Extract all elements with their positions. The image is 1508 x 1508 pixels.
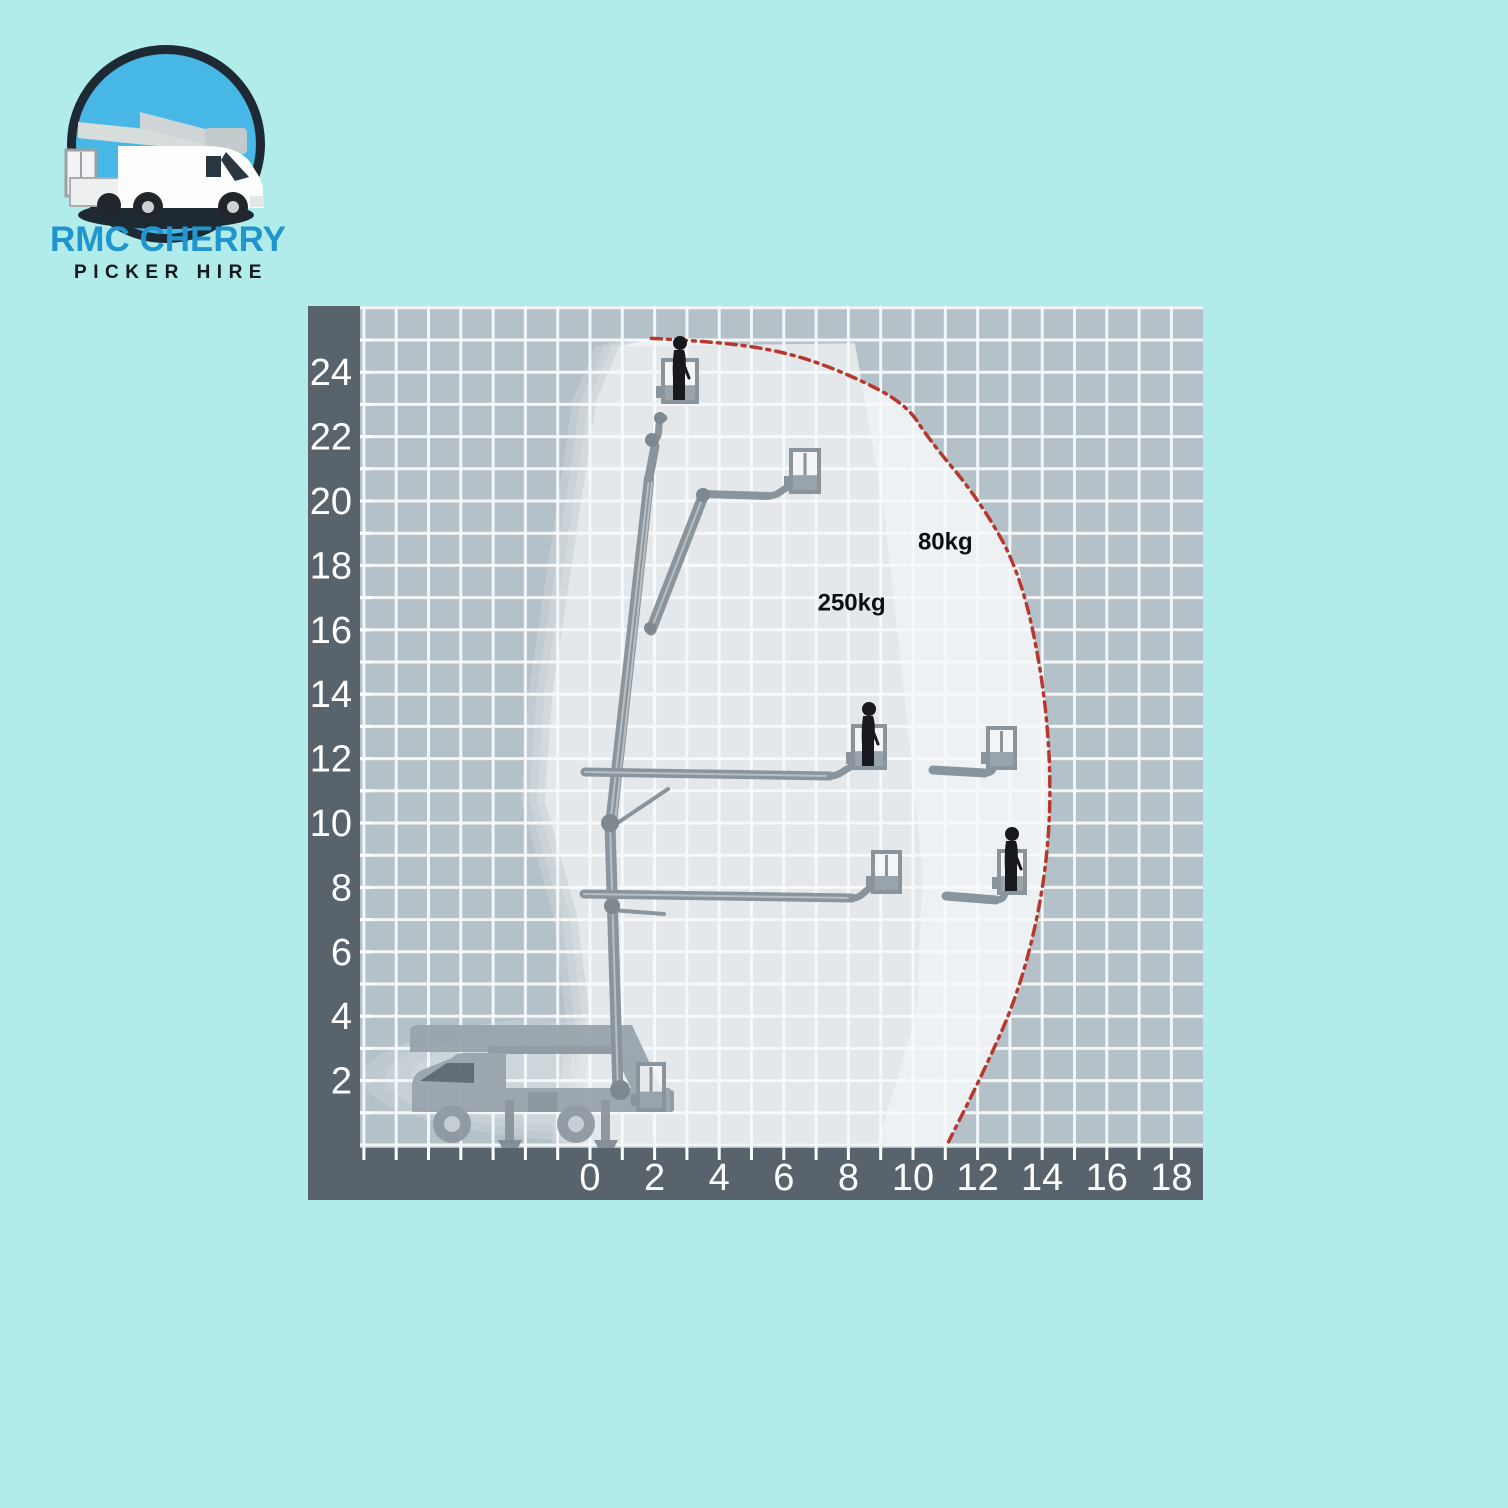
- y-axis-tick: [360, 950, 372, 953]
- operator-head: [862, 702, 876, 716]
- logo-wheel-2-hub: [142, 201, 154, 213]
- operator-body: [1005, 841, 1018, 891]
- y-axis-tick: [360, 435, 372, 438]
- operator-head: [1005, 827, 1019, 841]
- brand-logo: [66, 45, 265, 243]
- y-axis-tick: [360, 693, 372, 696]
- stowed-boom-lower: [488, 1046, 614, 1054]
- y-axis-tick: [360, 886, 372, 889]
- x-axis-tick: [556, 1148, 559, 1160]
- basket: [784, 450, 819, 492]
- x-axis-tick: [685, 1148, 688, 1160]
- y-axis-tick: [360, 1047, 372, 1050]
- boom-joint: [604, 898, 620, 914]
- logo-bumper: [250, 196, 264, 207]
- y-tick-label: 16: [310, 610, 352, 652]
- boom-joint: [654, 412, 666, 424]
- boom-segment: [933, 770, 985, 773]
- x-tick-label: 18: [1150, 1157, 1192, 1199]
- page-background: 2468101214161820222402468101214161880kg2…: [0, 0, 1508, 1508]
- y-axis-tick: [360, 371, 372, 374]
- logo-truck: [66, 112, 264, 222]
- chassis-box: [528, 1092, 558, 1112]
- y-tick-label: 10: [310, 803, 352, 845]
- y-axis-tick: [360, 822, 372, 825]
- y-axis-tick: [360, 661, 372, 664]
- y-tick-label: 2: [331, 1061, 352, 1103]
- y-axis-tick: [360, 564, 372, 567]
- boom-joint: [610, 1080, 630, 1100]
- brand-name: RMC CHERRY: [27, 222, 309, 257]
- reach-diagram: 2468101214161820222402468101214161880kg2…: [308, 306, 1203, 1200]
- x-axis-tick: [492, 1148, 495, 1160]
- basket-panel: [640, 1092, 662, 1108]
- y-axis-tick: [360, 918, 372, 921]
- y-axis-tick: [360, 1111, 372, 1114]
- x-axis-tick: [750, 1148, 753, 1160]
- operator-body: [862, 716, 875, 766]
- x-axis-tick: [944, 1148, 947, 1160]
- x-tick-label: 8: [838, 1157, 859, 1199]
- x-tick-label: 16: [1086, 1157, 1128, 1199]
- x-axis-tick: [459, 1148, 462, 1160]
- y-tick-label: 12: [310, 739, 352, 781]
- x-tick-label: 0: [579, 1157, 600, 1199]
- boom-joint: [645, 433, 659, 447]
- logo-van-body: [118, 146, 210, 208]
- basket-mount: [656, 386, 664, 398]
- brand-text-block: RMC CHERRY PICKER HIRE: [27, 222, 309, 282]
- y-tick-label: 8: [331, 867, 352, 909]
- x-tick-label: 12: [956, 1157, 998, 1199]
- load-label-80kg: 80kg: [918, 528, 973, 555]
- x-tick-label: 4: [709, 1157, 730, 1199]
- operator-head: [673, 336, 687, 350]
- y-tick-label: 22: [310, 417, 352, 459]
- y-tick-label: 18: [310, 545, 352, 587]
- y-axis-tick: [360, 983, 372, 986]
- basket: [866, 852, 900, 892]
- x-axis-tick: [362, 1148, 365, 1160]
- x-axis-band: [308, 1148, 1203, 1200]
- y-tick-label: 24: [310, 352, 352, 394]
- x-tick-label: 14: [1021, 1157, 1063, 1199]
- basket-mount: [866, 876, 874, 888]
- boom-joint: [696, 488, 710, 502]
- outrigger-leg-front: [505, 1100, 514, 1142]
- boom-segment: [704, 494, 768, 496]
- y-axis-tick: [360, 500, 372, 503]
- y-tick-label: 4: [331, 996, 352, 1038]
- y-tick-label: 20: [310, 481, 352, 523]
- y-tick-label: 6: [331, 932, 352, 974]
- y-axis-tick: [360, 1015, 372, 1018]
- y-axis-tick: [360, 467, 372, 470]
- basket-mount: [846, 752, 854, 764]
- y-axis-tick: [360, 596, 372, 599]
- boom-joint: [601, 814, 619, 832]
- basket-panel: [793, 475, 817, 490]
- logo-wheel-1: [97, 193, 121, 217]
- outrigger-pad-rear: [594, 1140, 618, 1148]
- x-axis-tick: [815, 1148, 818, 1160]
- x-axis-tick: [524, 1148, 527, 1160]
- basket: [981, 728, 1015, 768]
- x-axis-tick: [879, 1148, 882, 1160]
- y-axis-tick: [360, 628, 372, 631]
- outrigger-pad-front: [498, 1140, 522, 1148]
- y-axis-tick: [360, 403, 372, 406]
- x-axis-tick: [1008, 1148, 1011, 1160]
- y-axis-tick: [360, 757, 372, 760]
- y-axis-tick: [360, 1079, 372, 1082]
- operator-body: [673, 350, 686, 400]
- boom-segment: [649, 446, 655, 478]
- basket-mount: [784, 476, 792, 488]
- logo-wheel-3-hub: [227, 201, 239, 213]
- boom-joint: [644, 622, 656, 634]
- x-axis-tick: [1073, 1148, 1076, 1160]
- x-axis-tick: [621, 1148, 624, 1160]
- front-wheel-hub: [444, 1116, 460, 1132]
- x-tick-label: 10: [892, 1157, 934, 1199]
- basket-panel: [875, 876, 898, 890]
- basket-panel: [990, 752, 1013, 766]
- y-axis-tick: [360, 854, 372, 857]
- x-tick-label: 6: [773, 1157, 794, 1199]
- basket-mount: [981, 752, 989, 764]
- brand-tagline: PICKER HIRE: [27, 263, 309, 282]
- y-axis-tick: [360, 725, 372, 728]
- basket-mount: [992, 877, 1000, 889]
- basket-mount: [631, 1094, 639, 1106]
- x-axis-tick: [395, 1148, 398, 1160]
- rear-wheel-hub: [568, 1116, 584, 1132]
- x-axis-tick: [427, 1148, 430, 1160]
- y-tick-label: 14: [310, 674, 352, 716]
- y-axis-tick: [360, 339, 372, 342]
- x-axis-tick: [1138, 1148, 1141, 1160]
- logo-side-window: [206, 156, 221, 177]
- outrigger-leg-rear: [601, 1100, 610, 1142]
- load-label-250kg: 250kg: [818, 589, 886, 616]
- x-tick-label: 2: [644, 1157, 665, 1199]
- y-axis-tick: [360, 789, 372, 792]
- boom-segment: [946, 896, 996, 900]
- y-axis-tick: [360, 532, 372, 535]
